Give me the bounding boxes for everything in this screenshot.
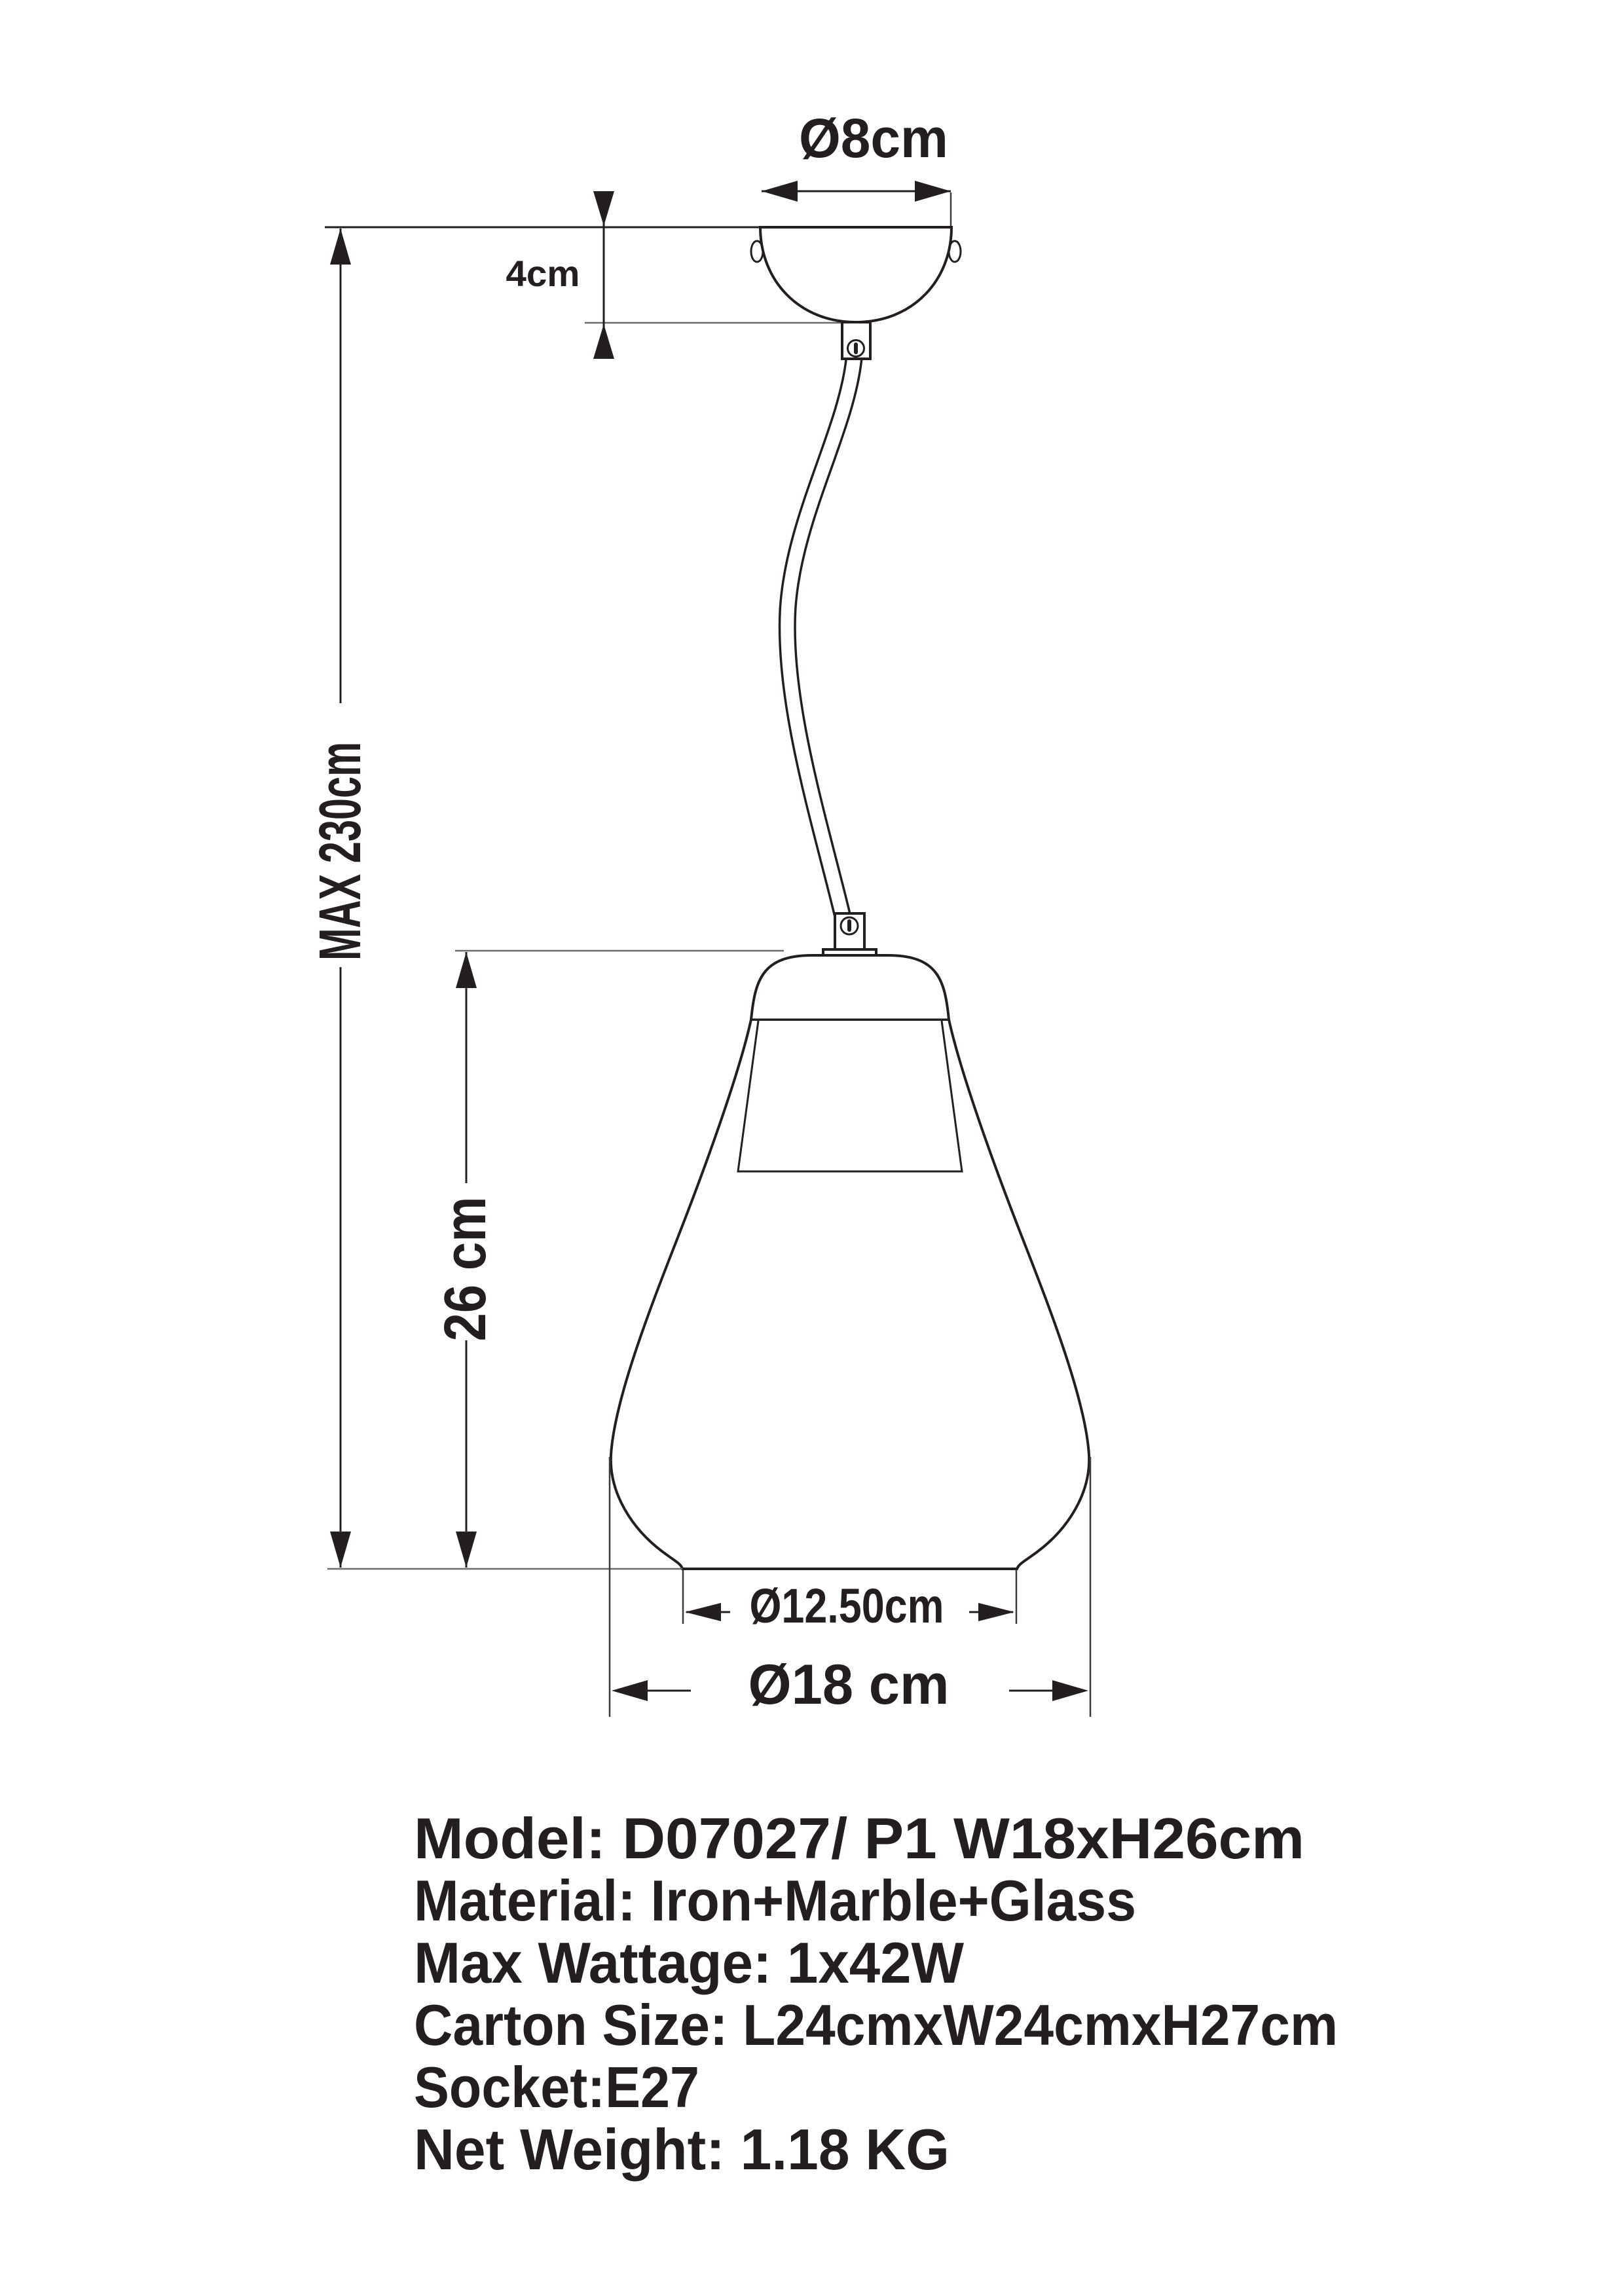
arrowhead-up-icon xyxy=(330,229,351,265)
max-height-dimension: MAX 230cm xyxy=(308,229,373,1568)
shade-cord-grip xyxy=(835,913,864,951)
pendant-lamp-diagram: Ø8cm 4cm MAX 230cm 26 cm xyxy=(0,0,1624,2295)
grip-screw-slot xyxy=(847,919,851,932)
arrowhead-left-icon xyxy=(762,181,798,202)
max-height-label: MAX 230cm xyxy=(308,742,373,961)
arrowhead-left-icon xyxy=(612,1680,648,1701)
spec-block: Model: D07027/ P1 W18xH26cm Material: Ir… xyxy=(414,1806,1338,2182)
canopy-height-dimension: 4cm xyxy=(325,191,841,359)
arrowhead-right-icon xyxy=(1052,1680,1088,1701)
grip-screw-slot xyxy=(854,342,858,354)
shade-diameter-label: Ø18 cm xyxy=(748,1653,950,1716)
arrowhead-right-icon xyxy=(915,181,951,202)
canopy xyxy=(751,227,961,322)
arrowhead-down-icon xyxy=(593,191,614,226)
inner-diameter-dimension: Ø12.50cm xyxy=(683,1570,1016,1633)
suspension-cord xyxy=(787,359,854,914)
arrowhead-up-icon xyxy=(593,324,614,359)
diagram-page: Ø8cm 4cm MAX 230cm 26 cm xyxy=(0,0,1624,2295)
canopy-cord-grip xyxy=(842,322,870,359)
spec-carton-size: Carton Size: L24cmxW24cmxH27cm xyxy=(414,1992,1338,2057)
glass-body xyxy=(611,1019,1089,1569)
arrowhead-down-icon xyxy=(456,1532,477,1568)
inner-diameter-label: Ø12.50cm xyxy=(750,1579,944,1633)
arrowhead-up-icon xyxy=(456,952,477,988)
canopy-dome xyxy=(760,227,951,322)
spec-max-wattage: Max Wattage: 1x42W xyxy=(414,1930,964,1995)
shade-cap xyxy=(751,955,949,1019)
arrowhead-down-icon xyxy=(330,1532,351,1568)
canopy-diameter-dimension: Ø8cm xyxy=(762,107,951,226)
shade-height-label: 26 cm xyxy=(433,1197,498,1342)
arrowhead-right-icon xyxy=(978,1603,1014,1621)
spec-socket: Socket:E27 xyxy=(414,2055,699,2120)
spec-model: Model: D07027/ P1 W18xH26cm xyxy=(414,1806,1304,1871)
canopy-height-label: 4cm xyxy=(506,253,580,294)
grip-body xyxy=(835,913,864,951)
canopy-diameter-label: Ø8cm xyxy=(799,107,948,169)
spec-material: Material: Iron+Marble+Glass xyxy=(414,1868,1136,1933)
spec-net-weight: Net Weight: 1.18 KG xyxy=(414,2117,950,2182)
cord-inner xyxy=(787,359,854,914)
arrowhead-left-icon xyxy=(685,1603,721,1621)
